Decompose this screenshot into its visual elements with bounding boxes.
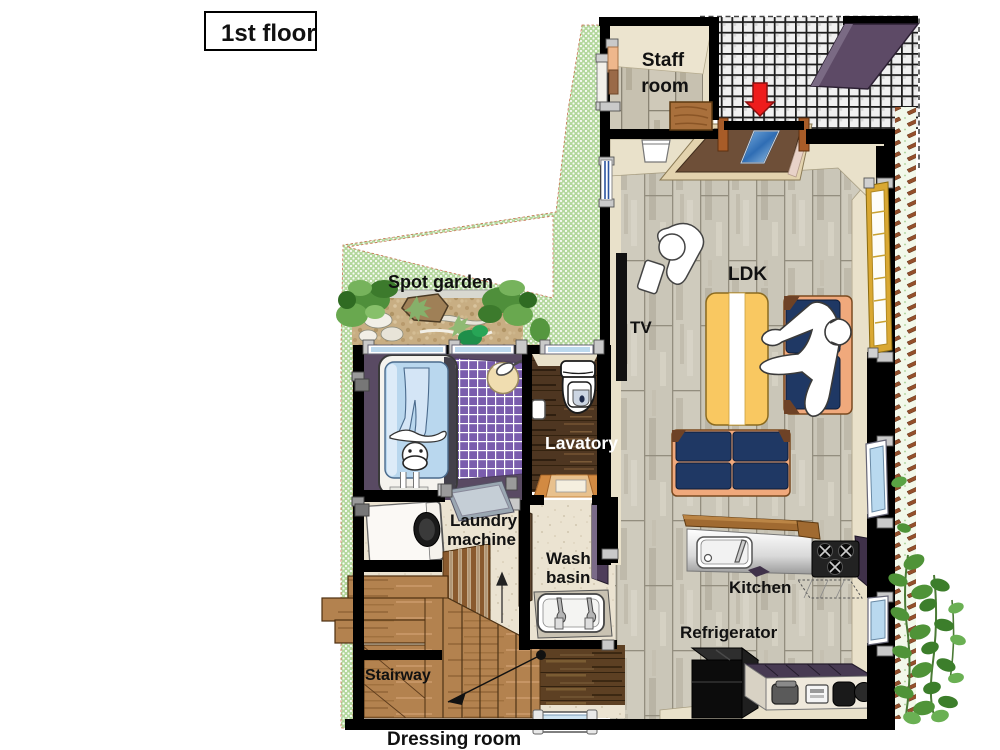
svg-text:room: room [641, 76, 689, 97]
svg-text:Stairway: Stairway [365, 667, 431, 684]
svg-text:Wash: Wash [546, 549, 591, 568]
svg-text:TV: TV [630, 318, 652, 337]
svg-text:Lavatory: Lavatory [545, 433, 618, 453]
svg-text:Dressing room: Dressing room [387, 729, 521, 750]
svg-text:Refrigerator: Refrigerator [680, 623, 778, 642]
svg-text:LDK: LDK [728, 264, 767, 285]
svg-text:basin: basin [546, 568, 590, 587]
svg-text:machine: machine [447, 530, 516, 549]
svg-text:Spot garden: Spot garden [388, 272, 493, 292]
svg-text:Kitchen: Kitchen [729, 578, 791, 597]
svg-text:1st floor: 1st floor [221, 20, 316, 47]
svg-text:Laundry: Laundry [450, 511, 518, 530]
svg-text:Staff: Staff [642, 50, 685, 71]
